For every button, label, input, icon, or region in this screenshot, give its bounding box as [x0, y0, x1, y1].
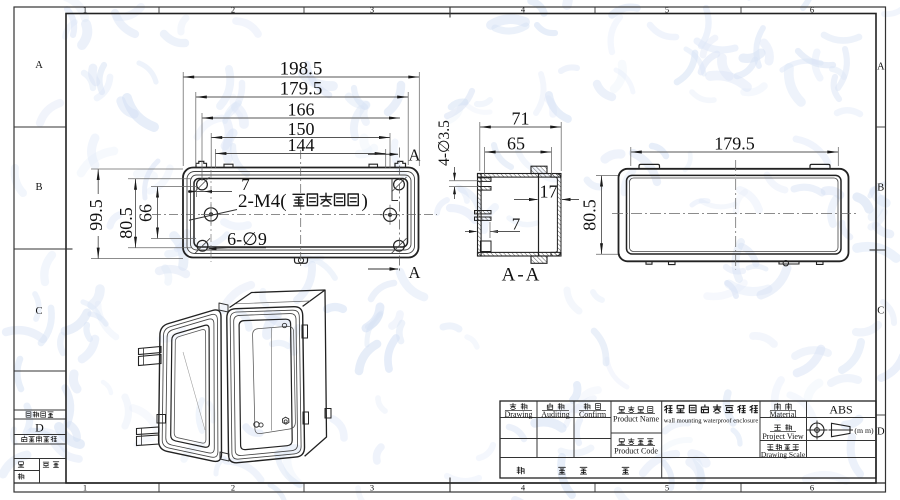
svg-text:Confirm: Confirm — [579, 410, 607, 419]
svg-text:99.5: 99.5 — [86, 199, 106, 231]
svg-text:1: 1 — [83, 482, 87, 492]
svg-text:198.5: 198.5 — [280, 59, 323, 80]
svg-text:6: 6 — [810, 482, 814, 492]
svg-text:5: 5 — [665, 482, 669, 492]
svg-text:5: 5 — [665, 4, 669, 14]
svg-text:179.5: 179.5 — [280, 79, 323, 100]
svg-text:B: B — [877, 183, 884, 194]
svg-text:(m m): (m m) — [854, 426, 874, 435]
svg-text:71: 71 — [512, 109, 530, 129]
svg-text:Product Name: Product Name — [613, 415, 659, 424]
svg-text:80.5: 80.5 — [116, 207, 136, 239]
svg-text:C: C — [877, 306, 884, 317]
svg-text:C: C — [35, 306, 42, 317]
svg-text:2: 2 — [231, 482, 235, 492]
svg-text:A: A — [877, 62, 885, 73]
svg-text:A: A — [35, 60, 43, 71]
svg-text:65: 65 — [507, 134, 525, 154]
svg-text:6-∅9: 6-∅9 — [227, 229, 267, 249]
svg-text:2: 2 — [231, 4, 235, 14]
svg-text:179.5: 179.5 — [714, 134, 755, 154]
svg-text:17: 17 — [540, 182, 558, 202]
svg-text:80.5: 80.5 — [580, 199, 600, 231]
svg-text:3: 3 — [370, 482, 374, 492]
svg-text:Project View: Project View — [762, 432, 804, 441]
svg-text:66: 66 — [136, 204, 156, 222]
svg-text:1: 1 — [83, 4, 87, 14]
svg-text:wall mounting waterproof enclo: wall mounting waterproof enclosure — [664, 418, 759, 425]
svg-text:D: D — [877, 427, 885, 438]
svg-text:166: 166 — [288, 100, 315, 120]
svg-text:A: A — [409, 263, 421, 282]
svg-text:ABS: ABS — [829, 403, 852, 417]
svg-text:4-∅3.5: 4-∅3.5 — [436, 120, 453, 166]
svg-text:3: 3 — [370, 4, 374, 14]
svg-text:7: 7 — [512, 214, 521, 233]
svg-text:Material: Material — [769, 410, 797, 419]
svg-text:Auditing: Auditing — [541, 410, 569, 419]
svg-text:B: B — [35, 182, 42, 193]
svg-text:A: A — [409, 146, 421, 165]
svg-text:2-M4(: 2-M4( — [238, 191, 287, 212]
svg-text:6: 6 — [810, 4, 814, 14]
svg-text:D: D — [35, 421, 44, 435]
svg-text:A-A: A-A — [502, 265, 542, 286]
svg-text:): ) — [362, 191, 368, 212]
svg-text:144: 144 — [288, 135, 315, 155]
svg-text:Drawing Scale: Drawing Scale — [761, 450, 806, 459]
svg-text:Product Code: Product Code — [614, 447, 658, 456]
svg-text:Drawing: Drawing — [505, 410, 533, 419]
